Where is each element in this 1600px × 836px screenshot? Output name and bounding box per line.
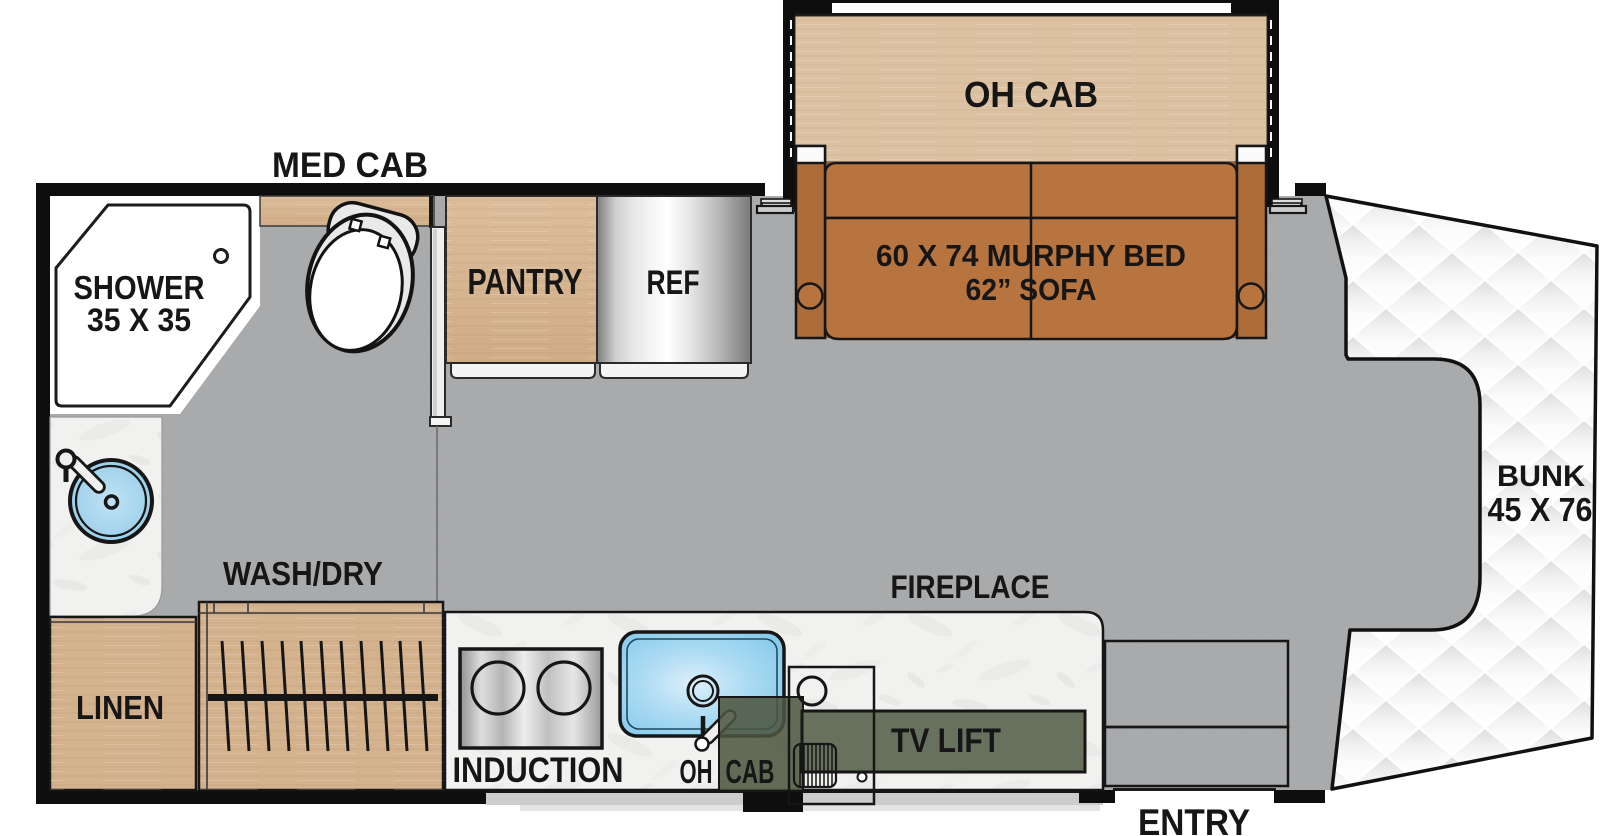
svg-text:60 X 74 MURPHY BED: 60 X 74 MURPHY BED <box>876 238 1186 273</box>
svg-text:REF: REF <box>647 264 700 302</box>
svg-text:35 X 35: 35 X 35 <box>87 302 191 338</box>
svg-text:ENTRY: ENTRY <box>1138 802 1250 836</box>
svg-text:62” SOFA: 62” SOFA <box>966 272 1097 307</box>
svg-text:PANTRY: PANTRY <box>468 261 583 302</box>
svg-text:MED CAB: MED CAB <box>272 146 428 185</box>
svg-text:OH: OH <box>680 753 713 790</box>
svg-text:45 X 76: 45 X 76 <box>1488 491 1593 528</box>
svg-text:LINEN: LINEN <box>76 689 164 726</box>
svg-text:OH CAB: OH CAB <box>964 74 1098 115</box>
svg-text:INDUCTION: INDUCTION <box>453 751 624 790</box>
svg-text:TV LIFT: TV LIFT <box>891 722 1001 760</box>
svg-text:CAB: CAB <box>726 753 775 790</box>
svg-text:SHOWER: SHOWER <box>74 269 205 306</box>
svg-text:BUNK: BUNK <box>1497 460 1585 493</box>
svg-text:WASH/DRY: WASH/DRY <box>223 555 383 592</box>
svg-text:FIREPLACE: FIREPLACE <box>891 569 1050 605</box>
